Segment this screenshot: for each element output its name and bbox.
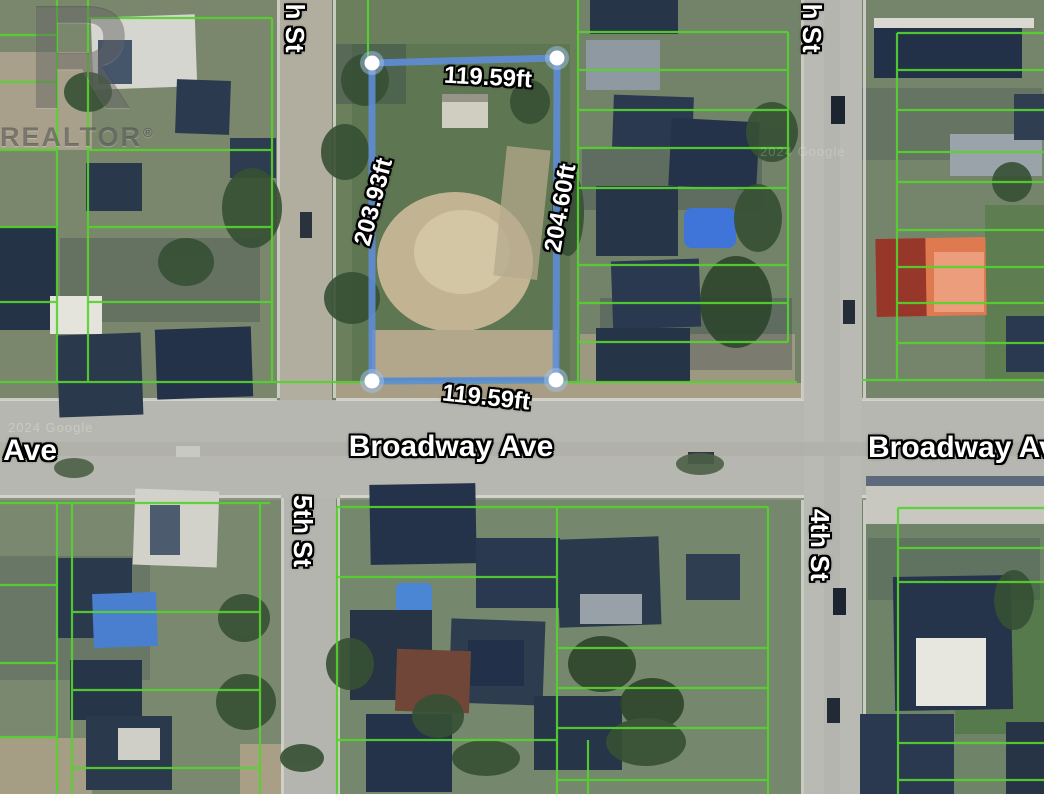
car: [831, 96, 845, 124]
parcel-corner-handle-se[interactable]: [549, 373, 564, 388]
house: [534, 696, 622, 770]
tree: [994, 570, 1034, 630]
tree: [606, 718, 686, 766]
building-edge: [874, 18, 1034, 28]
house: [590, 0, 678, 34]
house: [596, 328, 690, 382]
tree: [158, 238, 214, 286]
car: [833, 588, 846, 615]
house: [611, 258, 701, 329]
house: [0, 226, 58, 330]
terrain-dirt: [0, 738, 92, 794]
house: [175, 79, 231, 135]
tree: [452, 740, 520, 776]
tree: [510, 80, 550, 124]
car: [300, 212, 312, 238]
house: [57, 333, 144, 418]
tree: [568, 636, 636, 692]
house: [580, 594, 642, 624]
house: [150, 505, 180, 555]
house: [369, 483, 476, 565]
parcel-corner-handle-ne[interactable]: [550, 51, 565, 66]
car: [176, 446, 200, 457]
tree: [326, 638, 374, 690]
lot-shed-roof: [442, 94, 488, 102]
white-roof-section: [916, 638, 986, 706]
house: [668, 118, 759, 191]
car: [827, 698, 840, 723]
tree: [216, 674, 276, 730]
house: [1014, 94, 1044, 140]
road-wear: [0, 442, 1044, 456]
house: [860, 714, 954, 794]
house: [596, 186, 678, 256]
garage: [118, 728, 160, 760]
parcel-corner-handle-sw[interactable]: [365, 374, 380, 389]
lot-dirt-driveway: [372, 330, 558, 378]
tree: [412, 694, 464, 738]
parcel-corner-handle-nw[interactable]: [365, 56, 380, 71]
tree: [734, 184, 782, 252]
satellite-map-canvas[interactable]: 119.59ft 119.59ft 203.93ft 204.60ft h St…: [0, 0, 1044, 794]
tree: [218, 594, 270, 642]
blue-roof-house: [92, 592, 158, 648]
commercial-building-edge: [866, 476, 1044, 486]
swimming-pool: [684, 208, 736, 248]
tree: [321, 124, 369, 180]
house: [476, 538, 560, 608]
house: [1006, 722, 1044, 794]
tree: [280, 744, 324, 772]
orange-roof-house-dark-wing: [875, 238, 926, 317]
house: [586, 40, 660, 90]
house: [686, 554, 740, 600]
house: [468, 640, 524, 686]
lot-dirt-patch: [414, 210, 510, 294]
road-5th-north: [280, 0, 332, 400]
tree: [54, 458, 94, 478]
satellite-imagery: [0, 0, 1044, 794]
house: [86, 163, 142, 211]
tree: [676, 453, 724, 475]
house: [950, 134, 1042, 176]
house: [155, 326, 253, 399]
car: [843, 300, 855, 324]
